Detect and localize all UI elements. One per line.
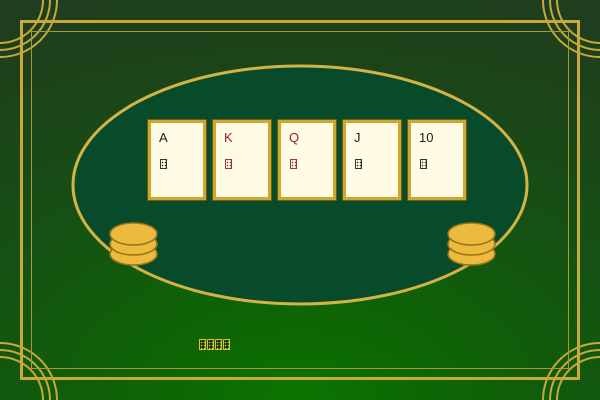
card-jack[interactable]: J <box>343 120 401 200</box>
status-label-missing-glyphs <box>199 339 230 350</box>
missing-glyph-box <box>207 339 214 350</box>
card-suit-missing-glyph-icon <box>355 159 362 169</box>
card-ten[interactable]: 10 <box>408 120 466 200</box>
community-cards: A K Q J 10 <box>0 0 600 400</box>
card-rank: 10 <box>419 131 433 145</box>
card-king[interactable]: K <box>213 120 271 200</box>
missing-glyph-box <box>223 339 230 350</box>
card-queen[interactable]: Q <box>278 120 336 200</box>
card-rank: A <box>159 131 168 145</box>
card-suit-missing-glyph-icon <box>225 159 232 169</box>
card-suit-missing-glyph-icon <box>420 159 427 169</box>
card-rank: J <box>354 131 361 145</box>
card-ace[interactable]: A <box>148 120 206 200</box>
poker-table-screen: A K Q J 10 <box>0 0 600 400</box>
card-rank: Q <box>289 131 299 145</box>
card-rank: K <box>224 131 233 145</box>
card-suit-missing-glyph-icon <box>160 159 167 169</box>
card-suit-missing-glyph-icon <box>290 159 297 169</box>
missing-glyph-box <box>215 339 222 350</box>
missing-glyph-box <box>199 339 206 350</box>
